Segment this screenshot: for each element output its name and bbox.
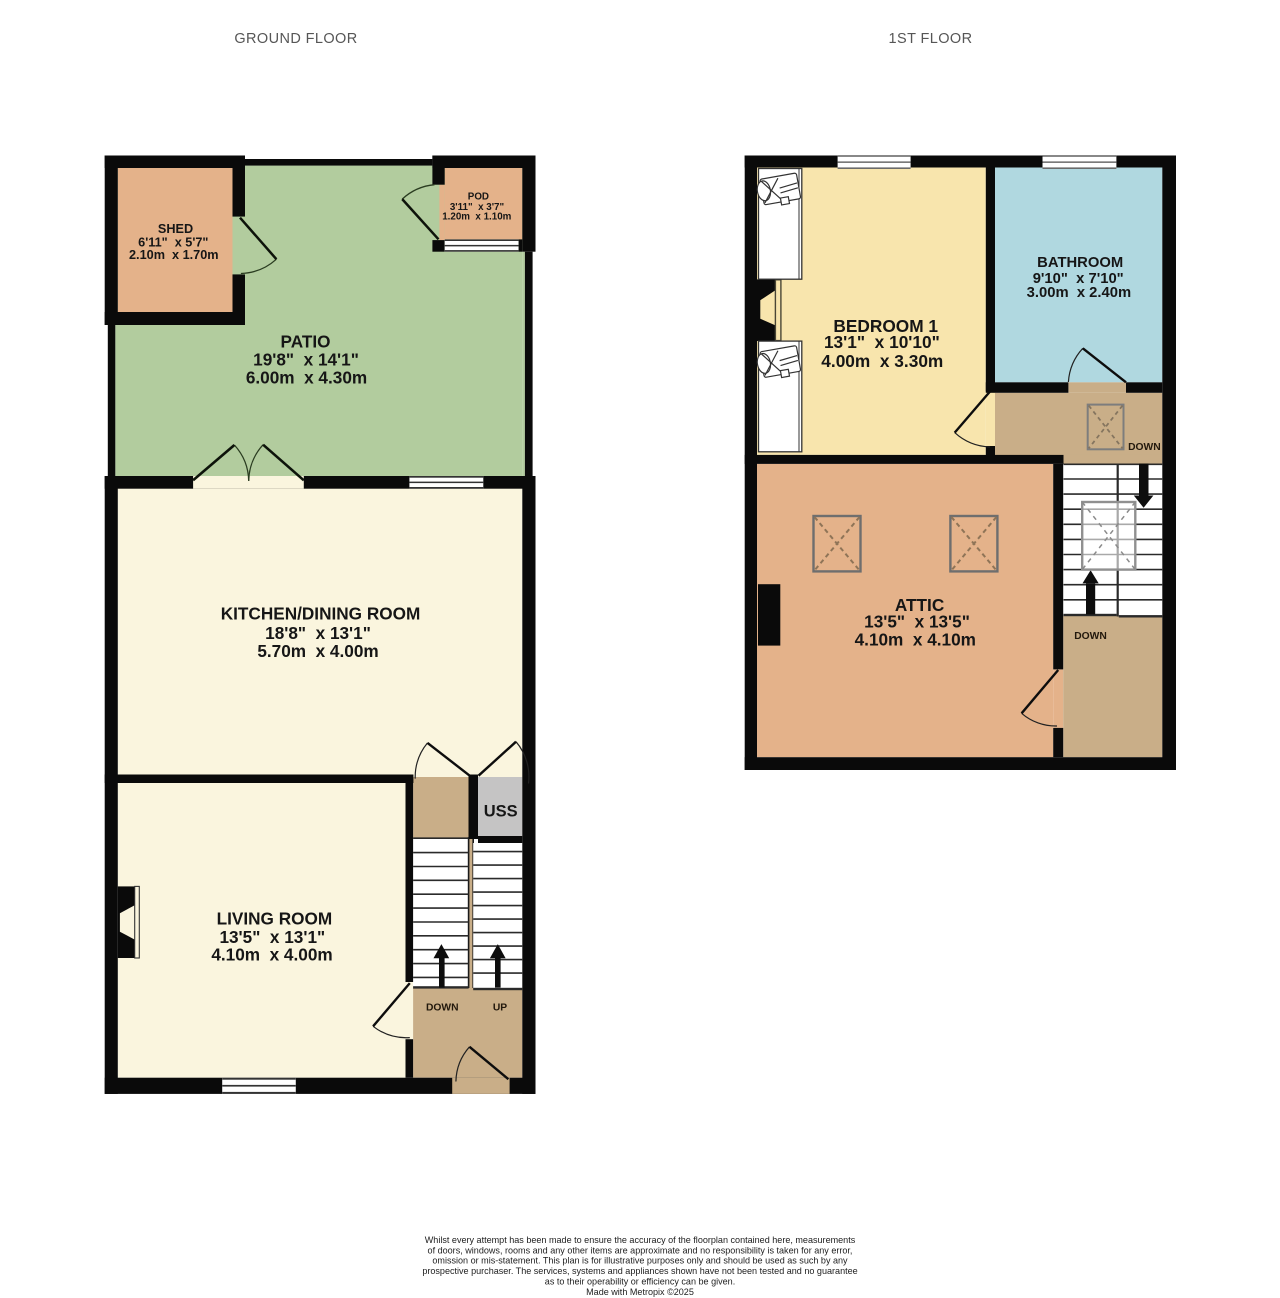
svg-text:LIVING ROOM: LIVING ROOM — [217, 909, 333, 929]
svg-text:13'5" x 13'5": 13'5" x 13'5" — [864, 612, 970, 632]
svg-text:19'8" x 14'1": 19'8" x 14'1" — [253, 350, 359, 370]
svg-text:1ST FLOOR: 1ST FLOOR — [889, 31, 973, 47]
svg-text:UP: UP — [493, 1003, 507, 1014]
svg-text:DOWN: DOWN — [1074, 631, 1107, 642]
svg-text:4.10m x 4.10m: 4.10m x 4.10m — [855, 630, 976, 650]
svg-text:DOWN: DOWN — [426, 1003, 459, 1014]
svg-text:KITCHEN/DINING ROOM: KITCHEN/DINING ROOM — [221, 604, 421, 624]
svg-text:4.00m x 3.30m: 4.00m x 3.30m — [821, 351, 943, 371]
svg-text:of doors, windows, rooms and a: of doors, windows, rooms and any other i… — [428, 1245, 853, 1255]
svg-text:POD: POD — [468, 192, 489, 203]
svg-text:DOWN: DOWN — [1128, 442, 1161, 453]
svg-text:as to their operability or eff: as to their operability or efficiency ca… — [545, 1277, 735, 1287]
svg-text:PATIO: PATIO — [281, 332, 331, 352]
svg-text:18'8" x 13'1": 18'8" x 13'1" — [265, 623, 371, 643]
svg-text:Whilst every attempt has been: Whilst every attempt has been made to en… — [425, 1235, 856, 1245]
svg-text:5.70m x 4.00m: 5.70m x 4.00m — [257, 641, 378, 661]
svg-text:BATHROOM: BATHROOM — [1037, 255, 1123, 271]
svg-text:GROUND FLOOR: GROUND FLOOR — [234, 31, 357, 47]
svg-text:Made with Metropix ©2025: Made with Metropix ©2025 — [586, 1287, 694, 1297]
svg-text:4.10m x 4.00m: 4.10m x 4.00m — [211, 945, 332, 965]
svg-text:1.20m x 1.10m: 1.20m x 1.10m — [442, 212, 511, 223]
svg-text:USS: USS — [484, 803, 518, 821]
svg-text:2.10m x 1.70m: 2.10m x 1.70m — [129, 248, 219, 262]
svg-text:3.00m x 2.40m: 3.00m x 2.40m — [1027, 285, 1131, 301]
svg-text:prospective purchaser. The ser: prospective purchaser. The services, sys… — [422, 1266, 857, 1276]
svg-text:6.00m x 4.30m: 6.00m x 4.30m — [246, 368, 367, 388]
svg-text:SHED: SHED — [158, 222, 193, 236]
svg-text:omission or mis-statement. Thi: omission or mis-statement. This plan is … — [432, 1256, 848, 1266]
svg-text:13'1" x 10'10": 13'1" x 10'10" — [824, 332, 940, 352]
